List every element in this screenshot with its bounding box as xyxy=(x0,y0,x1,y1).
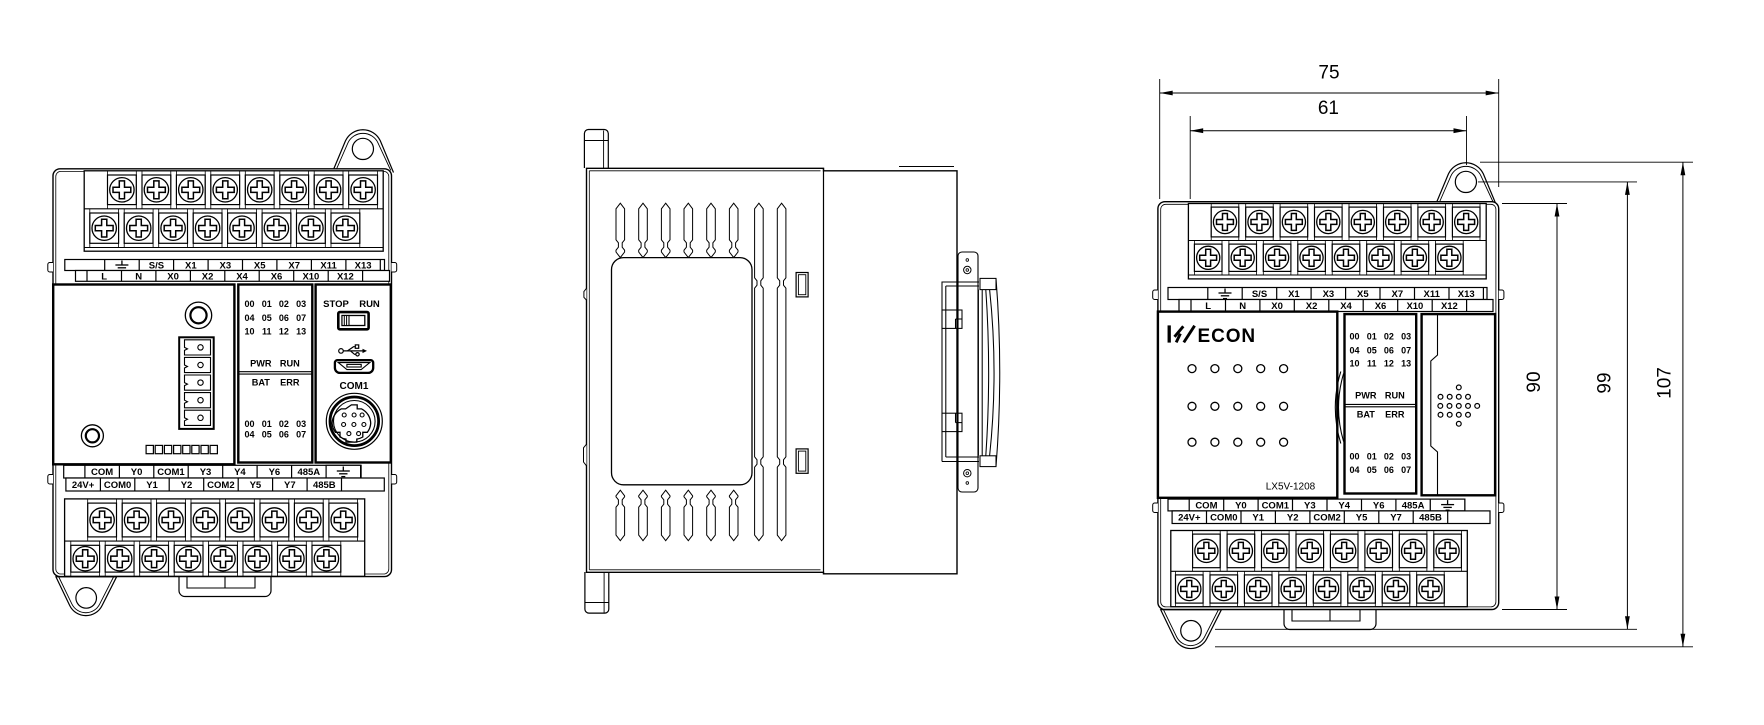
svg-text:X10: X10 xyxy=(1406,301,1423,312)
svg-text:07: 07 xyxy=(296,313,306,323)
svg-text:COM0: COM0 xyxy=(104,480,131,491)
svg-text:485A: 485A xyxy=(297,467,320,478)
svg-text:Y3: Y3 xyxy=(200,467,212,478)
svg-text:24V+: 24V+ xyxy=(1178,513,1201,524)
svg-text:N: N xyxy=(135,271,142,282)
svg-text:PWR: PWR xyxy=(1355,391,1377,401)
svg-text:ERR: ERR xyxy=(280,378,300,388)
svg-text:X12: X12 xyxy=(1441,301,1458,312)
svg-text:COM2: COM2 xyxy=(207,480,234,491)
svg-text:COM0: COM0 xyxy=(1210,513,1237,524)
svg-text:Y2: Y2 xyxy=(1287,513,1299,524)
svg-text:107: 107 xyxy=(1655,367,1676,399)
svg-text:04: 04 xyxy=(244,430,254,440)
svg-text:12: 12 xyxy=(1384,359,1394,369)
svg-text:BAT: BAT xyxy=(1357,410,1376,420)
svg-text:Y5: Y5 xyxy=(1356,513,1368,524)
svg-text:75: 75 xyxy=(1318,63,1339,84)
svg-text:X1: X1 xyxy=(185,260,197,271)
svg-text:X13: X13 xyxy=(355,260,372,271)
svg-text:06: 06 xyxy=(1384,345,1394,355)
svg-text:01: 01 xyxy=(262,299,272,309)
svg-text:05: 05 xyxy=(1367,345,1377,355)
svg-text:05: 05 xyxy=(262,430,272,440)
svg-text:Y7: Y7 xyxy=(284,480,296,491)
svg-text:03: 03 xyxy=(1401,452,1411,462)
svg-text:COM: COM xyxy=(91,467,113,478)
svg-text:06: 06 xyxy=(1384,465,1394,475)
svg-text:02: 02 xyxy=(1384,331,1394,341)
svg-text:00: 00 xyxy=(244,299,254,309)
svg-text:06: 06 xyxy=(279,313,289,323)
svg-text:X4: X4 xyxy=(236,271,248,282)
svg-text:Y2: Y2 xyxy=(181,480,193,491)
svg-text:07: 07 xyxy=(1401,465,1411,475)
svg-text:COM2: COM2 xyxy=(1313,513,1340,524)
svg-text:02: 02 xyxy=(279,419,289,429)
svg-text:Y3: Y3 xyxy=(1304,500,1316,511)
svg-text:ECON: ECON xyxy=(1198,326,1257,347)
svg-text:S/S: S/S xyxy=(149,260,164,271)
svg-text:Y4: Y4 xyxy=(1338,500,1350,511)
svg-text:06: 06 xyxy=(279,430,289,440)
svg-text:RUN: RUN xyxy=(359,299,380,310)
svg-text:03: 03 xyxy=(296,299,306,309)
svg-text:RUN: RUN xyxy=(1385,391,1405,401)
svg-text:02: 02 xyxy=(1384,452,1394,462)
svg-text:05: 05 xyxy=(1367,465,1377,475)
svg-text:07: 07 xyxy=(1401,345,1411,355)
svg-text:11: 11 xyxy=(262,326,272,336)
svg-text:Y0: Y0 xyxy=(1235,500,1247,511)
svg-text:X6: X6 xyxy=(271,271,283,282)
svg-text:03: 03 xyxy=(296,419,306,429)
svg-text:Y6: Y6 xyxy=(269,467,281,478)
svg-text:13: 13 xyxy=(296,326,306,336)
svg-text:X11: X11 xyxy=(1424,289,1441,300)
svg-text:10: 10 xyxy=(1349,359,1359,369)
svg-text:Y1: Y1 xyxy=(146,480,158,491)
svg-text:X7: X7 xyxy=(288,260,300,271)
svg-text:00: 00 xyxy=(1349,452,1359,462)
svg-text:00: 00 xyxy=(244,419,254,429)
svg-text:04: 04 xyxy=(1349,345,1359,355)
svg-text:12: 12 xyxy=(279,326,289,336)
svg-text:13: 13 xyxy=(1401,359,1411,369)
svg-text:X3: X3 xyxy=(1323,289,1335,300)
svg-text:X5: X5 xyxy=(254,260,266,271)
svg-text:PWR: PWR xyxy=(250,359,272,369)
svg-text:STOP: STOP xyxy=(323,299,349,310)
svg-text:Y5: Y5 xyxy=(250,480,262,491)
svg-text:X13: X13 xyxy=(1458,289,1475,300)
svg-text:07: 07 xyxy=(296,430,306,440)
svg-text:COM1: COM1 xyxy=(340,381,369,392)
svg-text:X6: X6 xyxy=(1375,301,1387,312)
svg-text:BAT: BAT xyxy=(252,378,271,388)
svg-text:N: N xyxy=(1239,301,1246,312)
svg-text:99: 99 xyxy=(1595,372,1616,393)
svg-text:Y7: Y7 xyxy=(1390,513,1402,524)
svg-text:10: 10 xyxy=(244,326,254,336)
svg-text:Y1: Y1 xyxy=(1252,513,1264,524)
svg-text:Y6: Y6 xyxy=(1373,500,1385,511)
svg-text:03: 03 xyxy=(1401,331,1411,341)
svg-text:04: 04 xyxy=(1349,465,1359,475)
svg-text:01: 01 xyxy=(1367,331,1377,341)
svg-text:COM1: COM1 xyxy=(1262,500,1290,511)
svg-text:S/S: S/S xyxy=(1252,289,1267,300)
svg-text:X0: X0 xyxy=(1271,301,1283,312)
svg-text:L: L xyxy=(101,271,107,282)
svg-text:04: 04 xyxy=(244,313,254,323)
svg-text:X12: X12 xyxy=(337,271,354,282)
svg-text:RUN: RUN xyxy=(280,359,300,369)
svg-text:ERR: ERR xyxy=(1385,410,1405,420)
svg-text:LX5V-1208: LX5V-1208 xyxy=(1266,481,1316,492)
svg-text:X1: X1 xyxy=(1288,289,1300,300)
svg-text:485B: 485B xyxy=(1419,513,1442,524)
svg-text:24V+: 24V+ xyxy=(72,480,95,491)
svg-text:02: 02 xyxy=(279,299,289,309)
svg-text:X10: X10 xyxy=(302,271,319,282)
svg-text:X5: X5 xyxy=(1357,289,1369,300)
svg-text:Y0: Y0 xyxy=(131,467,143,478)
svg-text:X3: X3 xyxy=(219,260,231,271)
svg-text:90: 90 xyxy=(1524,371,1545,392)
svg-text:X7: X7 xyxy=(1391,289,1403,300)
svg-text:485A: 485A xyxy=(1402,500,1425,511)
svg-text:01: 01 xyxy=(1367,452,1377,462)
svg-text:X0: X0 xyxy=(167,271,179,282)
svg-text:Y4: Y4 xyxy=(234,467,246,478)
svg-text:COM1: COM1 xyxy=(157,467,185,478)
svg-text:11: 11 xyxy=(1367,359,1377,369)
svg-text:L: L xyxy=(1205,301,1211,312)
svg-text:X2: X2 xyxy=(1306,301,1318,312)
svg-text:COM: COM xyxy=(1195,500,1217,511)
svg-text:X4: X4 xyxy=(1340,301,1352,312)
svg-text:485B: 485B xyxy=(313,480,336,491)
svg-text:X2: X2 xyxy=(202,271,214,282)
svg-text:61: 61 xyxy=(1318,98,1339,119)
svg-text:05: 05 xyxy=(262,313,272,323)
svg-text:00: 00 xyxy=(1349,331,1359,341)
svg-text:X11: X11 xyxy=(320,260,337,271)
svg-text:01: 01 xyxy=(262,419,272,429)
